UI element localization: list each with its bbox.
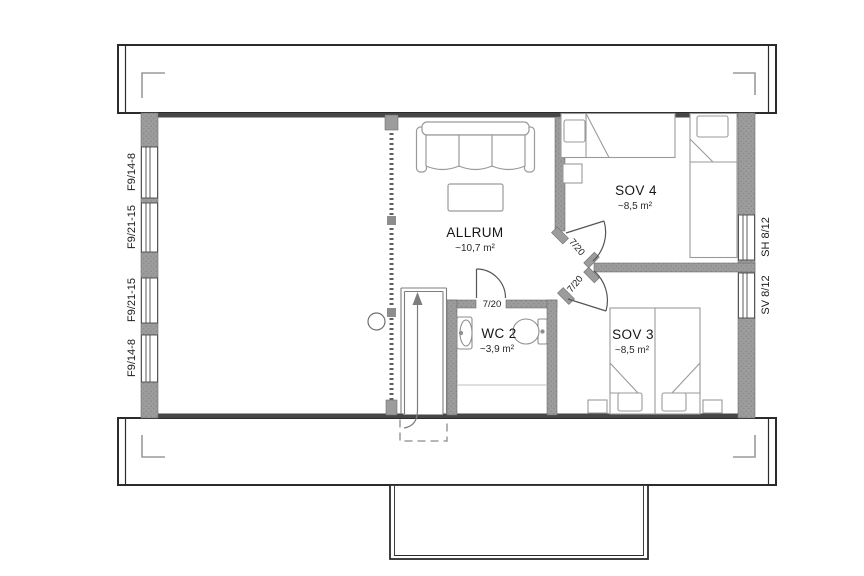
loft-railing	[385, 115, 398, 415]
room-label-allrum: ALLRUM	[446, 225, 503, 240]
door-size-wc2: 7/20	[483, 299, 502, 310]
pillow	[618, 393, 642, 411]
railing-post	[387, 216, 396, 225]
top-eave-band	[118, 45, 776, 113]
railing-post	[385, 115, 398, 130]
window-sv-8-12	[739, 273, 755, 318]
nightstand-icon	[563, 164, 582, 183]
railing-post	[386, 400, 397, 415]
wc-wall-right	[547, 300, 557, 415]
floor-plan-canvas: ALLRUM ~10,7 m² SOV 4 ~8,5 m² SOV 3 ~8,5…	[0, 0, 864, 576]
chimney-pipe-symbol	[368, 313, 385, 330]
window-label-f9-14-8-bottom: F9/14-8	[126, 339, 138, 377]
sink-icon	[457, 317, 472, 349]
room-label-sov3: SOV 3	[612, 327, 654, 342]
bed-sov4-vertical	[690, 114, 737, 258]
window-sh-8-12	[739, 215, 755, 260]
window-label-f9-21-15-upper: F9/21-15	[126, 205, 138, 249]
window-label-f9-14-8-top: F9/14-8	[126, 153, 138, 191]
room-label-sov4: SOV 4	[615, 183, 657, 198]
wall-sov4-sov3	[594, 263, 755, 272]
window-label-sh-8-12: SH 8/12	[760, 217, 772, 257]
wc-wall-left	[447, 300, 457, 415]
door-size-sov4: 7/20	[566, 237, 586, 258]
room-area-wc2: ~3,9 m²	[480, 344, 515, 355]
railing-post	[387, 308, 396, 317]
door-jamb-cap	[552, 227, 569, 244]
window-f9-14-8-top	[142, 147, 158, 198]
room-area-sov4: ~8,5 m²	[618, 201, 653, 212]
sofa-icon	[417, 122, 535, 172]
nightstand-icon	[588, 400, 607, 413]
coffee-table-icon	[448, 184, 503, 211]
window-label-f9-21-15-lower: F9/21-15	[126, 278, 138, 322]
room-label-wc2: WC 2	[481, 326, 516, 341]
window-f9-21-15-lower	[142, 278, 158, 323]
toilet-icon	[513, 319, 547, 344]
window-label-sv-8-12: SV 8/12	[760, 275, 772, 314]
room-area-sov3: ~8,5 m²	[615, 345, 650, 356]
floor-plan-page: ALLRUM ~10,7 m² SOV 4 ~8,5 m² SOV 3 ~8,5…	[0, 0, 864, 576]
nightstand-icon	[703, 400, 722, 413]
bed-sov4-horizontal	[561, 114, 675, 158]
window-f9-21-15-upper	[142, 203, 158, 252]
room-area-allrum: ~10,7 m²	[455, 243, 495, 254]
door-size-sov3: 7/20	[565, 274, 585, 295]
door-wc2	[477, 269, 506, 298]
pillow	[662, 393, 686, 411]
bed-sov3-double	[610, 308, 700, 414]
window-f9-14-8-bottom	[142, 335, 158, 382]
entry-extension-outline	[390, 485, 648, 559]
